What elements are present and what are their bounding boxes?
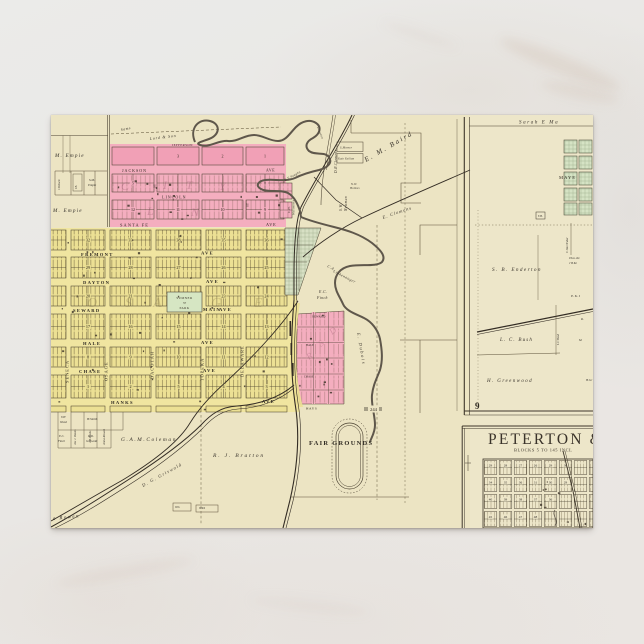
svg-text:Anna Rowen: Anna Rowen [102, 428, 106, 446]
svg-text:3: 3 [177, 154, 179, 159]
svg-text:33: 33 [128, 238, 132, 243]
svg-text:SANTA FE: SANTA FE [120, 222, 149, 227]
svg-text:L: L [146, 204, 154, 218]
svg-text:37: 37 [183, 301, 187, 305]
svg-text:AVE: AVE [201, 251, 214, 256]
svg-text:FAIR GROUNDS: FAIR GROUNDS [309, 440, 373, 447]
svg-text:H. Greenwood: H. Greenwood [486, 379, 533, 384]
svg-text:HANKS: HANKS [111, 400, 134, 405]
svg-text:13: 13 [264, 324, 268, 329]
svg-text:10: 10 [176, 355, 180, 360]
svg-text:30: 30 [549, 481, 553, 485]
svg-text:JACKSON: JACKSON [122, 168, 147, 173]
svg-text:Jas J. Davis: Jas J. Davis [73, 429, 77, 445]
svg-text:AVE: AVE [266, 168, 275, 172]
svg-text:11: 11 [221, 355, 225, 360]
svg-text:OSAGE: OSAGE [104, 361, 109, 381]
svg-text:Walsworth: Walsworth [291, 199, 295, 215]
svg-text:Newman: Newman [344, 196, 348, 212]
svg-text:AVE: AVE [201, 340, 214, 345]
svg-text:10: 10 [221, 207, 225, 212]
svg-text:H.Smith: H.Smith [86, 417, 98, 421]
svg-text:M. Empie: M. Empie [54, 153, 85, 159]
svg-text:1: 1 [87, 384, 89, 389]
svg-text:E.C.: E.C. [318, 290, 327, 294]
svg-text:J.B.: J.B. [75, 185, 78, 189]
svg-text:36: 36 [519, 481, 523, 485]
svg-text:29: 29 [549, 464, 553, 468]
svg-text:R.: R. [580, 317, 584, 321]
svg-text:35: 35 [504, 481, 508, 485]
svg-text:CHASE: CHASE [79, 369, 101, 374]
svg-text:J.B.Kurtz: J.B.Kurtz [58, 179, 61, 190]
svg-text:Sarah E Ma: Sarah E Ma [519, 120, 559, 125]
svg-text:8: 8 [264, 181, 266, 186]
svg-text:PARK: PARK [179, 306, 189, 310]
svg-text:J.R.Davis: J.R.Davis [88, 430, 92, 443]
svg-text:S.W.: S.W. [339, 203, 343, 211]
svg-text:N.W.: N.W. [350, 183, 357, 186]
svg-text:34: 34 [489, 481, 493, 485]
svg-text:Finch: Finch [316, 296, 328, 300]
svg-text:M. Empie: M. Empie [52, 208, 83, 214]
svg-text:L. C. Bush: L. C. Bush [499, 338, 533, 343]
svg-text:CHASE: CHASE [304, 376, 314, 379]
svg-text:HAYS: HAYS [306, 407, 317, 411]
svg-text:C: C [121, 179, 130, 193]
svg-text:E: E [253, 296, 263, 311]
svg-text:29: 29 [489, 464, 493, 468]
svg-text:AVE: AVE [266, 222, 276, 227]
svg-text:17: 17 [86, 324, 90, 329]
svg-text:27: 27 [176, 265, 180, 270]
svg-text:Wood: Wood [60, 420, 67, 424]
svg-text:37: 37 [534, 498, 538, 502]
svg-text:27: 27 [519, 464, 523, 468]
svg-text:FREMONT: FREMONT [81, 252, 114, 257]
svg-text:46: 46 [504, 515, 508, 519]
svg-text:38: 38 [519, 498, 523, 502]
svg-text:DAYTON: DAYTON [83, 280, 110, 285]
svg-text:Empie: Empie [87, 183, 97, 187]
svg-text:9: 9 [129, 355, 131, 360]
svg-text:A: A [152, 296, 162, 311]
svg-text:48: 48 [534, 515, 538, 519]
svg-text:5: 5 [132, 181, 134, 186]
svg-text:AVE: AVE [206, 279, 219, 284]
svg-text:2: 2 [129, 384, 131, 389]
svg-text:R. J. Bratton: R. J. Bratton [212, 453, 265, 459]
svg-text:G.A.M.Coleman: G.A.M.Coleman [121, 437, 177, 443]
svg-text:N: N [190, 205, 200, 219]
svg-text:O: O [87, 296, 97, 311]
svg-text:244: 244 [370, 407, 378, 412]
svg-text:E. K. I: E. K. I [570, 294, 581, 298]
svg-text:S.Mower: S.Mower [340, 146, 353, 150]
svg-text:29: 29 [564, 481, 568, 485]
svg-text:12: 12 [264, 355, 268, 360]
svg-text:D.R.Clemens: D.R.Clemens [334, 149, 338, 174]
svg-text:PETERTON &: PETERTON & [488, 431, 593, 448]
svg-text:M.: M. [578, 338, 582, 342]
svg-text:MAYE: MAYE [559, 175, 576, 180]
svg-text:C.Van Orsdal: C.Van Orsdal [566, 238, 569, 253]
svg-text:26: 26 [534, 464, 538, 468]
svg-text:AVE: AVE [203, 368, 216, 373]
svg-text:12: 12 [131, 207, 135, 212]
svg-text:9: 9 [264, 207, 266, 212]
svg-text:26: 26 [221, 265, 225, 270]
svg-text:31: 31 [534, 481, 538, 485]
svg-text:9: 9 [475, 401, 480, 411]
svg-text:36: 36 [264, 238, 268, 243]
svg-text:1: 1 [264, 154, 266, 159]
svg-text:29: 29 [86, 265, 90, 270]
svg-text:35: 35 [221, 238, 225, 243]
svg-text:15: 15 [176, 324, 180, 329]
svg-text:S.M.: S.M. [89, 178, 95, 182]
svg-text:S. B. Enderton: S. B. Enderton [492, 267, 542, 273]
svg-text:3: 3 [265, 384, 267, 389]
svg-text:23: 23 [221, 294, 225, 299]
svg-text:E.C.: E.C. [58, 434, 65, 438]
svg-text:C.D.: C.D. [287, 206, 291, 213]
svg-text:5: 5 [177, 384, 179, 389]
svg-text:Holmes: Holmes [349, 187, 360, 190]
svg-text:Wm: Wm [175, 506, 179, 509]
svg-text:S: S [125, 296, 132, 311]
svg-text:32: 32 [86, 238, 90, 243]
svg-text:Finch: Finch [57, 439, 65, 443]
svg-text:2: 2 [222, 154, 224, 159]
svg-text:J B Ke: J B Ke [569, 261, 578, 265]
svg-text:39: 39 [504, 498, 508, 502]
svg-text:8: 8 [87, 355, 89, 360]
svg-text:T.B.: T.B. [538, 215, 543, 218]
svg-text:38: 38 [176, 238, 180, 243]
svg-text:47: 47 [519, 515, 523, 519]
svg-text:Thos. Ke: Thos. Ke [569, 256, 580, 260]
svg-text:40: 40 [489, 498, 493, 502]
svg-text:JEFFERSON: JEFFERSON [172, 143, 193, 147]
svg-text:SENECA: SENECA [65, 360, 70, 383]
svg-text:Kate Kellam: Kate Kellam [337, 158, 354, 161]
svg-text:H.Gr: H.Gr [585, 378, 593, 382]
svg-text:TOPEKA: TOPEKA [200, 358, 205, 381]
svg-text:45: 45 [489, 515, 493, 519]
svg-text:28: 28 [504, 464, 508, 468]
svg-text:DELAWARE: DELAWARE [240, 345, 245, 377]
svg-text:HALE: HALE [306, 344, 314, 347]
svg-text:16: 16 [128, 324, 132, 329]
svg-text:L C Bush: L C Bush [556, 333, 560, 346]
svg-text:11: 11 [176, 207, 180, 212]
svg-text:DACOTAH: DACOTAH [150, 351, 155, 379]
svg-text:WKS: WKS [199, 507, 206, 510]
svg-text:28: 28 [128, 265, 132, 270]
svg-text:36: 36 [549, 498, 553, 502]
svg-text:HALE: HALE [83, 341, 101, 346]
svg-text:25: 25 [264, 265, 268, 270]
